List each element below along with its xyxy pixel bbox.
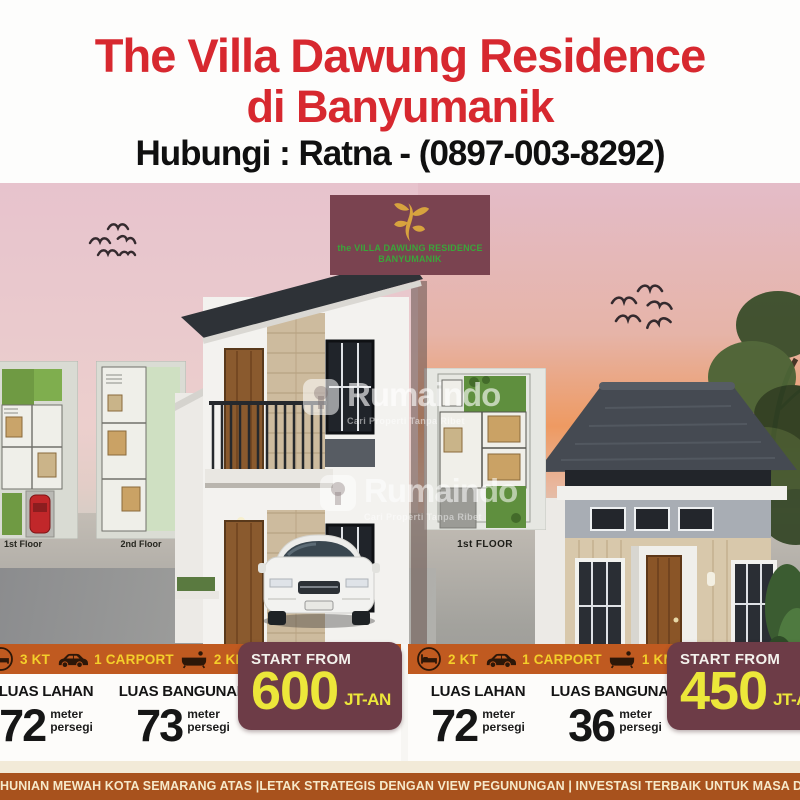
land-size: LUAS LAHAN 72 meter persegi <box>0 674 106 746</box>
watermark-brand: Rumaindo <box>347 376 500 413</box>
building-size-unit: persegi <box>187 721 230 734</box>
price-value: 600 <box>251 666 338 717</box>
watermark-brand: Rumaindo <box>364 472 517 509</box>
bathtub-icon <box>180 650 208 669</box>
building-size: LUAS BANGUNAN 73 meter persegi <box>108 674 258 746</box>
land-size-title: LUAS LAHAN <box>0 683 93 700</box>
poster-title-line1: The Villa Dawung Residence <box>0 32 800 79</box>
price-badge: START FROM 600 JT-AN <box>238 642 402 730</box>
land-size: LUAS LAHAN 72 meter persegi <box>418 674 538 746</box>
price-suffix: JT-AN <box>773 690 800 710</box>
watermark: Rumaindo Cari Properti Tanpa Ribet <box>303 379 500 429</box>
rumaindo-logo-icon <box>320 475 356 511</box>
floor-plan-second-label: 2nd Floor <box>96 539 186 549</box>
land-size-unit: meter <box>50 708 93 721</box>
building-size-unit: meter <box>619 708 662 721</box>
watermark-tagline: Cari Properti Tanpa Ribet <box>364 512 482 522</box>
land-size-title: LUAS LAHAN <box>431 683 526 700</box>
floor-plan-first-label: 1st Floor <box>0 539 64 549</box>
plant-flourish-icon <box>386 197 434 243</box>
birds-flock-right-icon <box>608 281 688 337</box>
divider-band <box>0 761 800 773</box>
land-size-value: 72 <box>0 706 45 746</box>
floor-plan-middle-label: 1st FLOOR <box>424 539 546 550</box>
logo-badge-line1: the VILLA DAWUNG RESIDENCE <box>337 243 482 254</box>
bed-icon <box>416 646 442 672</box>
spec-carport: 1 CARPORT <box>522 652 602 667</box>
rumaindo-logo-icon <box>303 379 339 415</box>
watermark-tagline: Cari Properti Tanpa Ribet <box>347 416 465 426</box>
floor-plan-first <box>0 361 78 539</box>
footer-strip: HUNIAN MEWAH KOTA SEMARANG ATAS |LETAK S… <box>0 773 800 800</box>
building-size-unit: meter <box>187 708 230 721</box>
car-icon <box>56 651 88 668</box>
spec-carport: 1 CARPORT <box>94 652 174 667</box>
contact-line: Hubungi : Ratna - (0897-003-8292) <box>0 134 800 174</box>
price-suffix: JT-AN <box>344 690 391 710</box>
poster: The Villa Dawung Residence di Banyumanik… <box>0 0 800 800</box>
price-value: 450 <box>680 666 767 717</box>
poster-title-line2: di Banyumanik <box>0 84 800 129</box>
building-size-title: LUAS BANGUNAN <box>551 683 680 700</box>
bathtub-icon <box>608 650 636 669</box>
land-size-unit: persegi <box>50 721 93 734</box>
spec-bedrooms: 2 KT <box>448 652 478 667</box>
car-icon <box>484 651 516 668</box>
price-badge: START FROM 450 JT-AN <box>667 642 800 730</box>
land-size-value: 72 <box>431 706 477 746</box>
building-size-unit: persegi <box>619 721 662 734</box>
building-size-value: 73 <box>136 706 182 746</box>
footer-tagline: HUNIAN MEWAH KOTA SEMARANG ATAS |LETAK S… <box>0 773 800 800</box>
logo-badge: the VILLA DAWUNG RESIDENCE BANYUMANIK <box>330 195 490 275</box>
building-size-value: 36 <box>568 706 614 746</box>
building-size-title: LUAS BANGUNAN <box>119 683 248 700</box>
floor-plan-second <box>96 361 186 539</box>
logo-badge-line2: BANYUMANIK <box>378 254 442 265</box>
land-size-unit: persegi <box>482 721 525 734</box>
bed-icon <box>0 646 14 672</box>
car <box>258 521 380 629</box>
watermark: Rumaindo Cari Properti Tanpa Ribet <box>320 475 517 525</box>
spec-bedrooms: 3 KT <box>20 652 50 667</box>
birds-flock-left-icon <box>88 221 150 263</box>
land-size-unit: meter <box>482 708 525 721</box>
